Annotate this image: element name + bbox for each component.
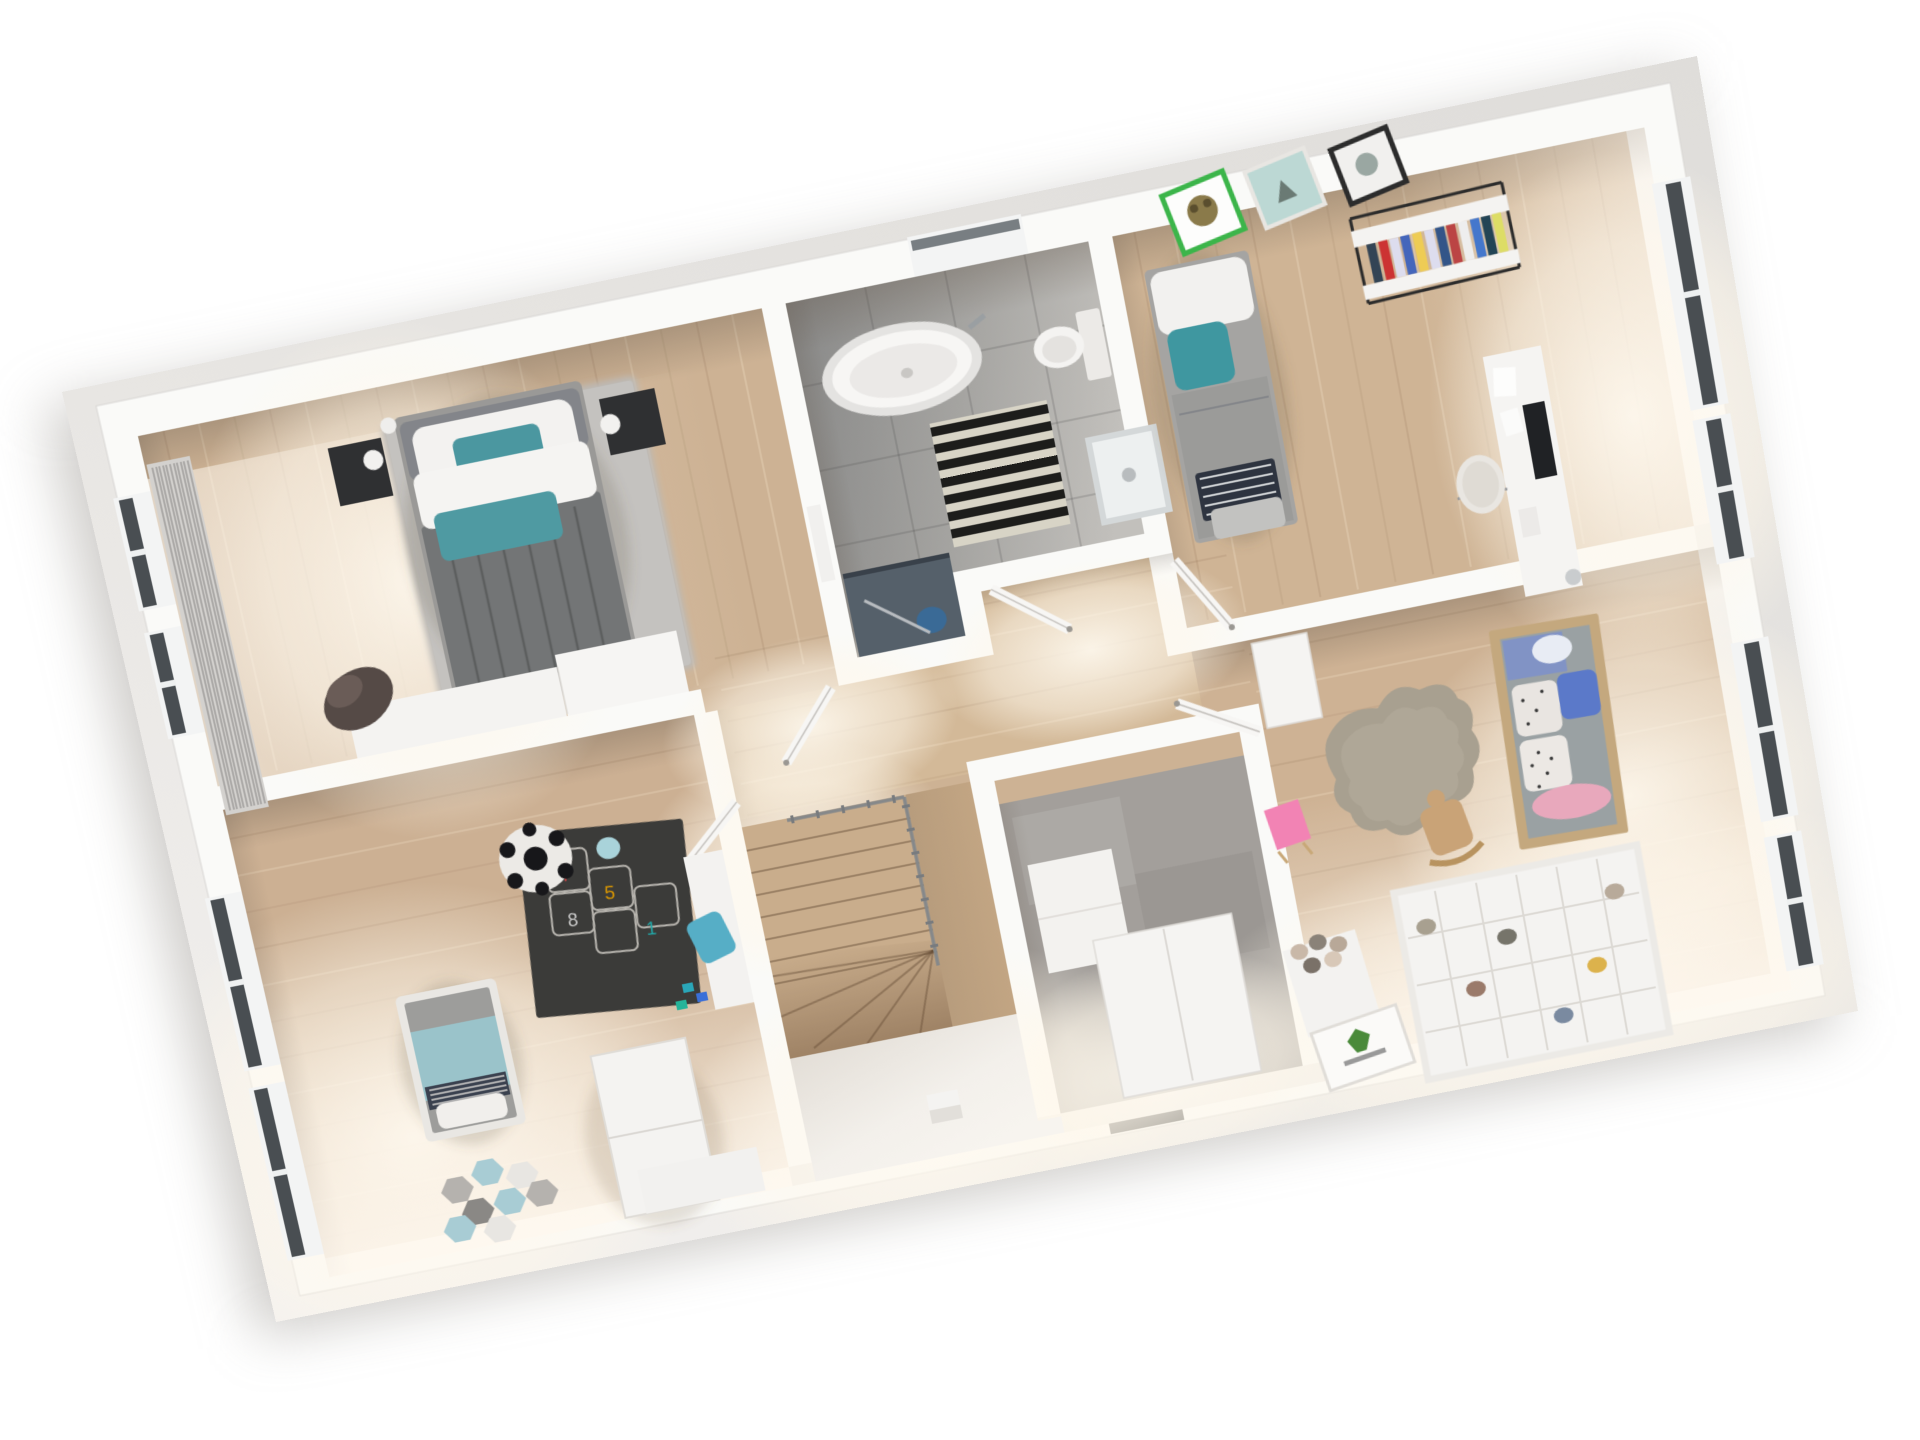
svg-text:1: 1 [645, 918, 658, 940]
svg-text:8: 8 [567, 909, 580, 931]
svg-text:5: 5 [603, 882, 616, 904]
